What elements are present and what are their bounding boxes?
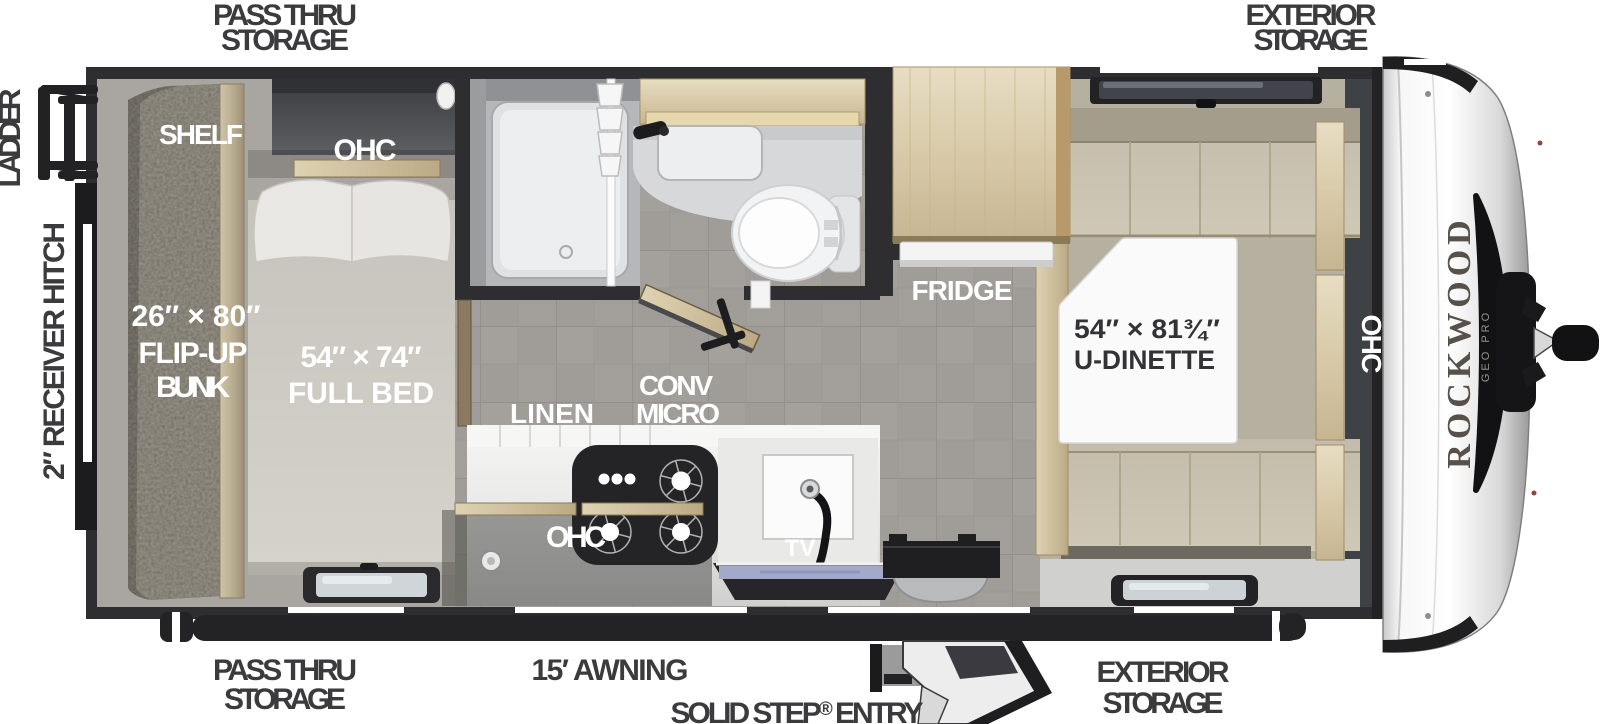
svg-text:OHC: OHC bbox=[334, 134, 397, 167]
svg-text:U-DINETTE: U-DINETTE bbox=[1074, 345, 1215, 375]
svg-text:FRIDGE: FRIDGE bbox=[912, 275, 1013, 306]
svg-text:GEO PRO: GEO PRO bbox=[1480, 310, 1492, 382]
svg-text:OHC: OHC bbox=[1356, 315, 1387, 374]
svg-text:CONV: CONV bbox=[639, 370, 713, 401]
svg-text:26″ × 80″: 26″ × 80″ bbox=[132, 300, 261, 333]
svg-text:54″ × 74″: 54″ × 74″ bbox=[301, 341, 422, 374]
svg-text:OHC: OHC bbox=[546, 521, 606, 554]
svg-text:54″ × 81¾″: 54″ × 81¾″ bbox=[1074, 314, 1220, 344]
svg-text:ROCKWOOD: ROCKWOOD bbox=[1441, 215, 1478, 468]
svg-text:EXTERIOR: EXTERIOR bbox=[1097, 656, 1230, 689]
svg-text:STORAGE: STORAGE bbox=[1103, 687, 1224, 720]
svg-text:2″ RECEIVER HITCH: 2″ RECEIVER HITCH bbox=[38, 222, 71, 480]
svg-text:FULL BED: FULL BED bbox=[288, 377, 434, 410]
svg-text:SHELF: SHELF bbox=[159, 119, 243, 150]
svg-text:STORAGE: STORAGE bbox=[224, 683, 346, 716]
svg-text:LINEN: LINEN bbox=[510, 398, 594, 429]
svg-text:FLIP-UP: FLIP-UP bbox=[139, 337, 248, 370]
svg-text:STORAGE: STORAGE bbox=[1254, 24, 1369, 57]
svg-text:SOLID STEP® ENTRY: SOLID STEP® ENTRY bbox=[671, 697, 924, 724]
svg-text:LADDER: LADDER bbox=[0, 88, 27, 187]
svg-text:STORAGE: STORAGE bbox=[221, 24, 349, 57]
svg-text:MICRO: MICRO bbox=[636, 398, 720, 429]
svg-text:BUNK: BUNK bbox=[156, 371, 230, 404]
svg-text:15′ AWNING: 15′ AWNING bbox=[532, 654, 689, 687]
svg-text:TV: TV bbox=[785, 535, 816, 562]
